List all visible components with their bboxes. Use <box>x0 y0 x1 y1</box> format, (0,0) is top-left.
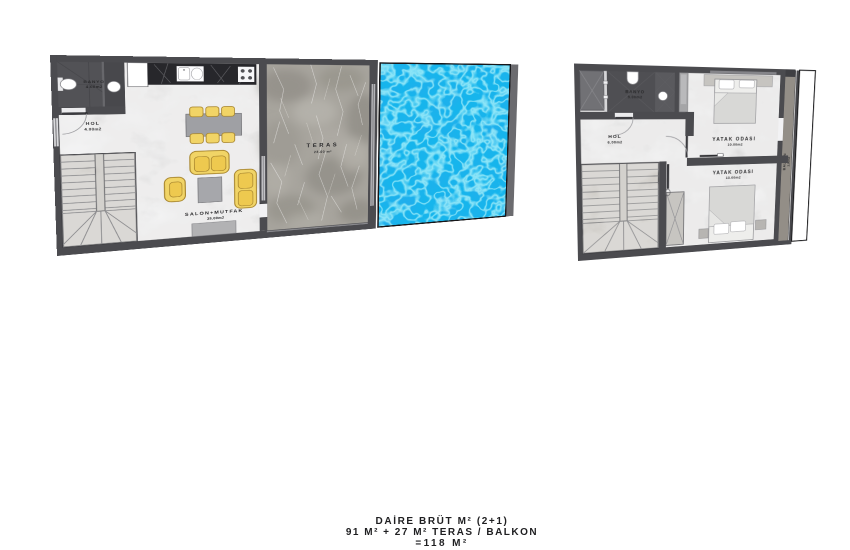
svg-text:6.00m2: 6.00m2 <box>608 140 623 145</box>
svg-text:YATAK ODASI: YATAK ODASI <box>712 137 756 143</box>
svg-text:HOL: HOL <box>608 135 621 140</box>
svg-text:BANYO: BANYO <box>625 90 644 95</box>
svg-text:4.00m2: 4.00m2 <box>84 127 102 132</box>
svg-text:10.00m2: 10.00m2 <box>728 143 743 147</box>
svg-text:TERAS: TERAS <box>307 141 340 149</box>
svg-text:5.00m2: 5.00m2 <box>628 95 643 99</box>
svg-text:4.00m2: 4.00m2 <box>86 85 103 89</box>
svg-text:BANYO: BANYO <box>83 80 105 84</box>
svg-text:23.00 m²: 23.00 m² <box>314 150 332 154</box>
svg-text:13.00m2: 13.00m2 <box>726 176 741 181</box>
